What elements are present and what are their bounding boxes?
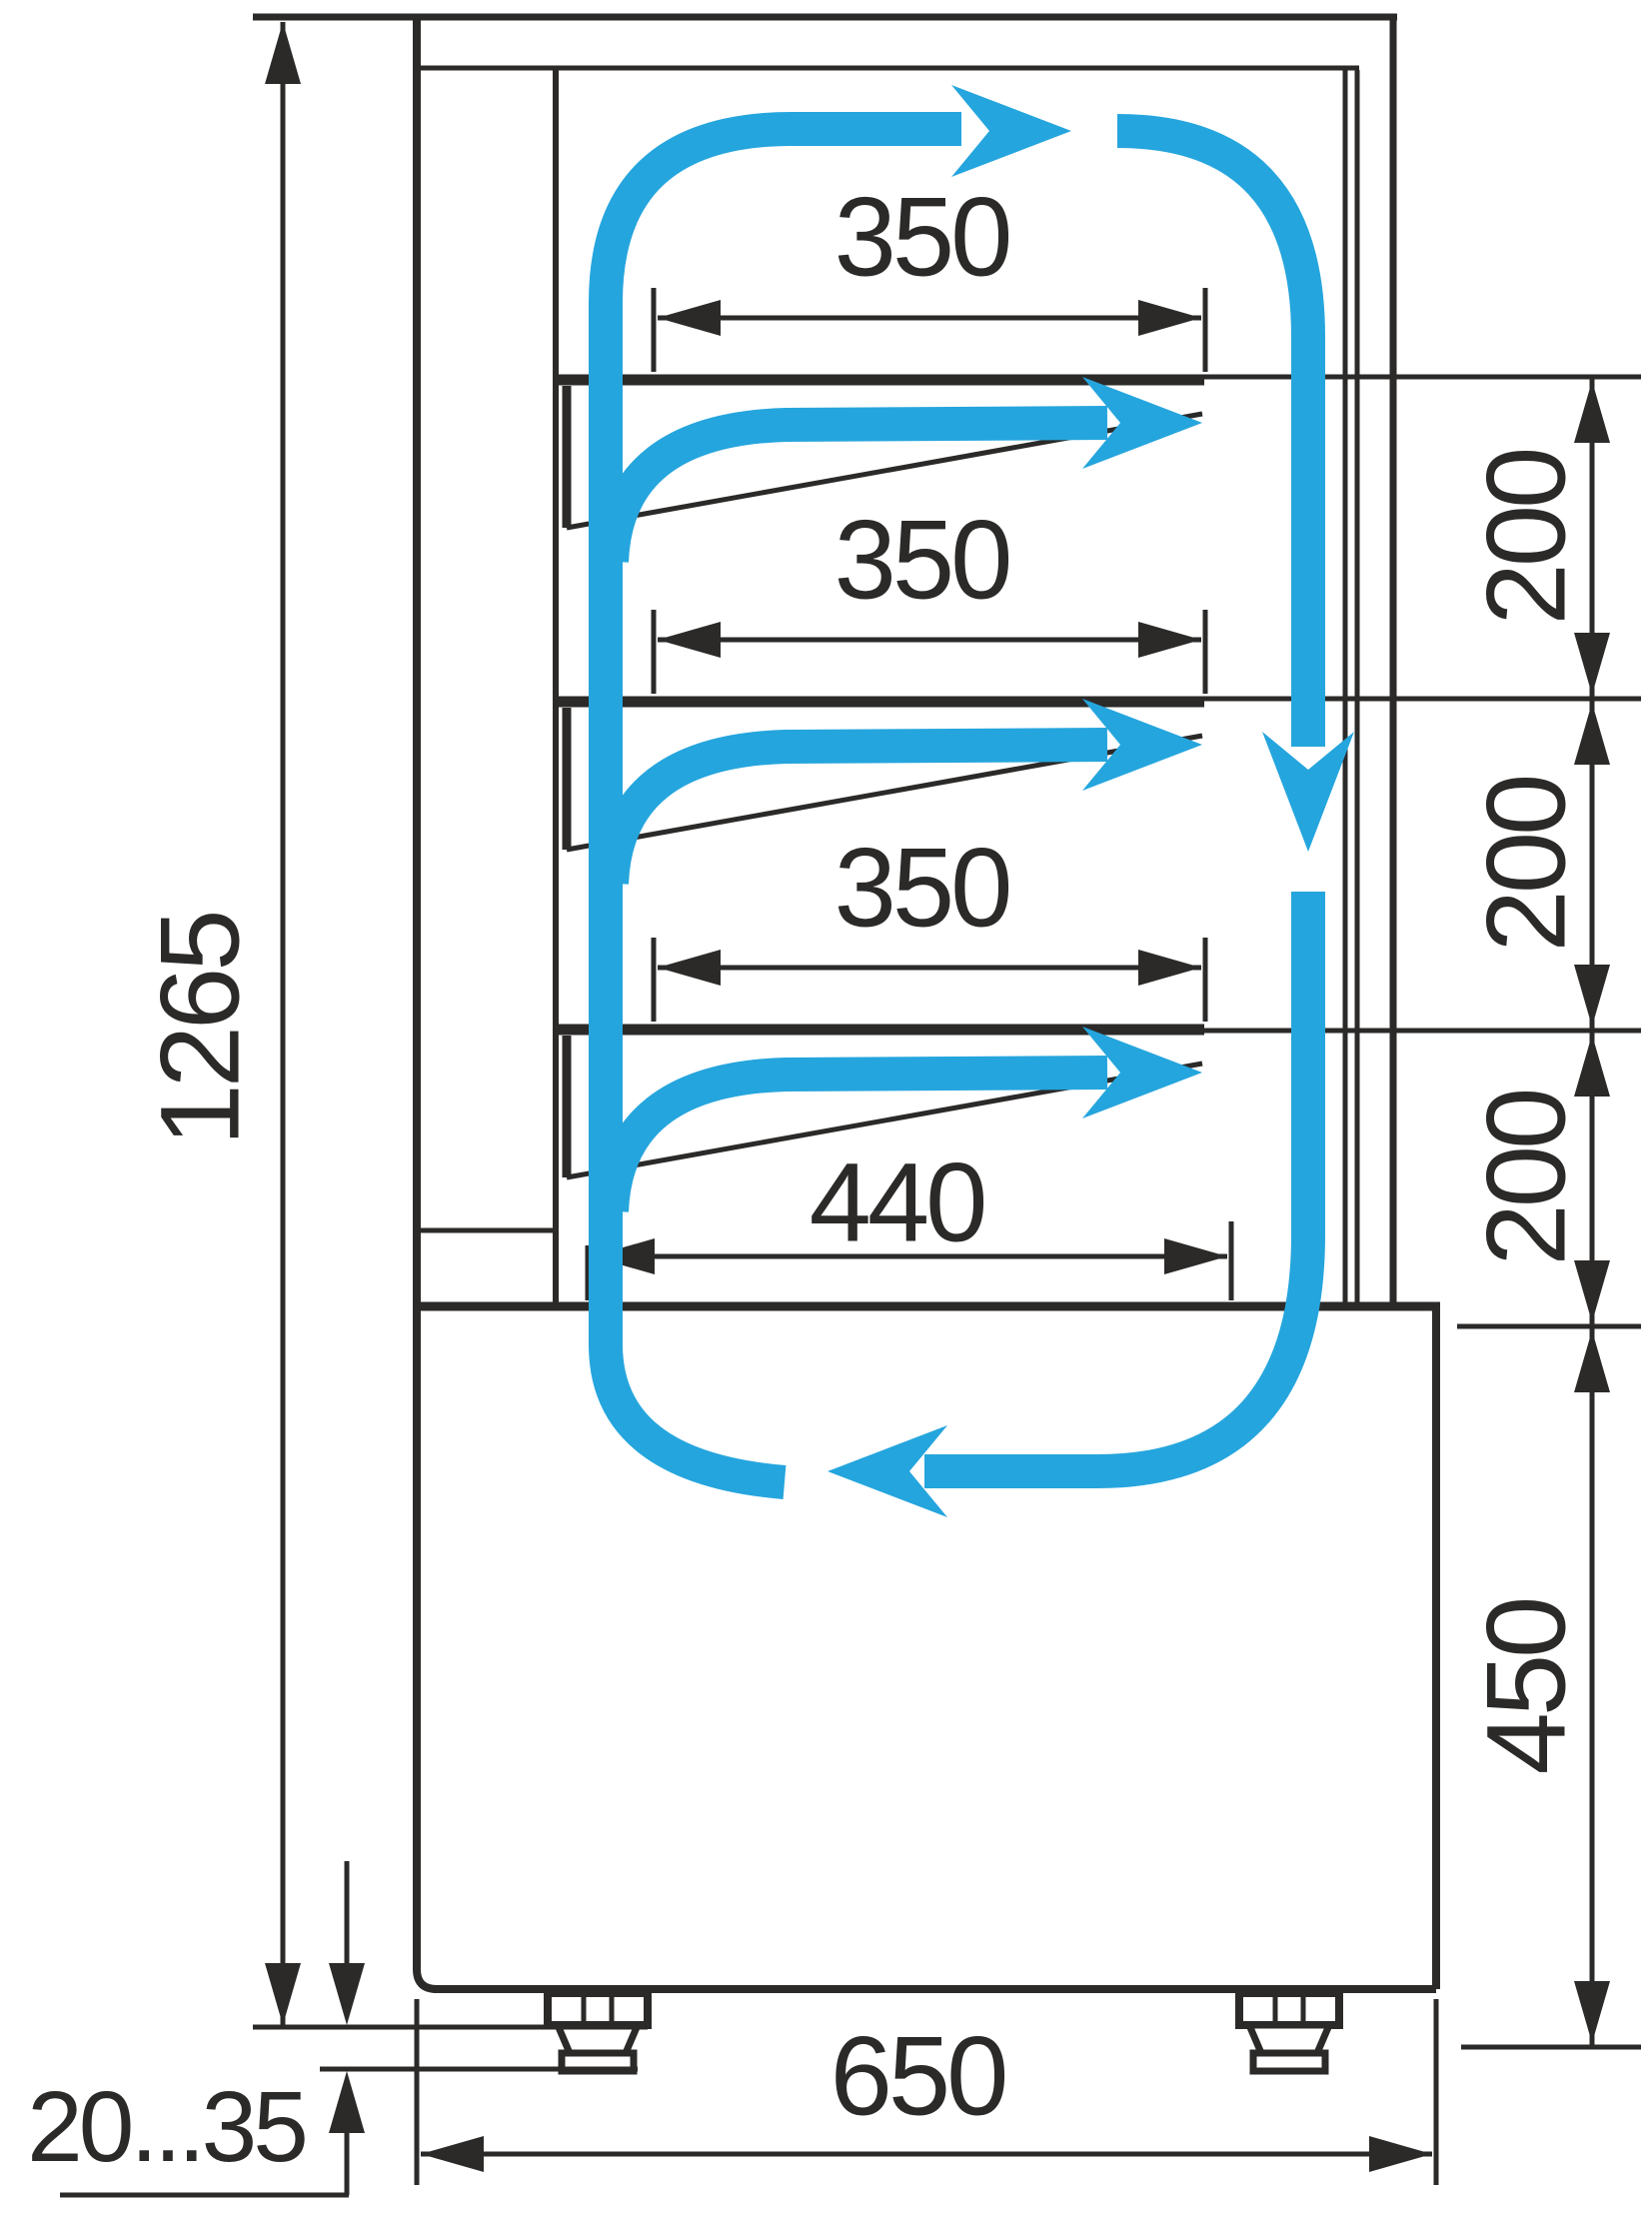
display-case-dimension-diagram: 350 350 350 440 200 200 200 (0, 0, 1652, 2213)
dim-label-650: 650 (830, 2014, 1005, 2139)
airflow-down-arrow-icon (1262, 732, 1354, 852)
dim-label-450: 450 (1464, 1600, 1589, 1775)
cabinet-outline (253, 17, 1440, 1989)
dim-label-1265: 1265 (138, 913, 263, 1145)
dim-label-440: 440 (810, 1140, 984, 1265)
back-wall-and-bottom (417, 17, 1436, 1989)
dim-label-200-lower: 200 (1464, 1092, 1589, 1266)
arrowhead-left (658, 300, 721, 336)
airflow-top-arrow-icon (951, 85, 1071, 177)
dim-label-20-35: 20...35 (27, 2071, 305, 2183)
foot-right (1239, 1993, 1339, 2071)
dim-shelf-350-top: 350 (654, 175, 1205, 373)
dim-label-350-top: 350 (834, 175, 1009, 300)
foot-left (548, 1993, 648, 2071)
diagram-page: 350 350 350 440 200 200 200 (0, 0, 1652, 2213)
arrowhead-right (1138, 300, 1201, 336)
dim-chain-right: 200 200 200 450 (1204, 377, 1641, 2047)
dim-label-200-top: 200 (1464, 451, 1589, 626)
dim-shelf-350-lower: 350 (654, 826, 1205, 1023)
dim-label-200-middle: 200 (1464, 778, 1589, 953)
dim-shelf-350-middle: 350 (654, 498, 1205, 695)
dim-label-350-lower: 350 (834, 826, 1009, 951)
airflow-riser-path (606, 129, 961, 1482)
dim-deck-440: 440 (588, 1140, 1231, 1301)
dim-label-350-middle: 350 (834, 498, 1009, 623)
